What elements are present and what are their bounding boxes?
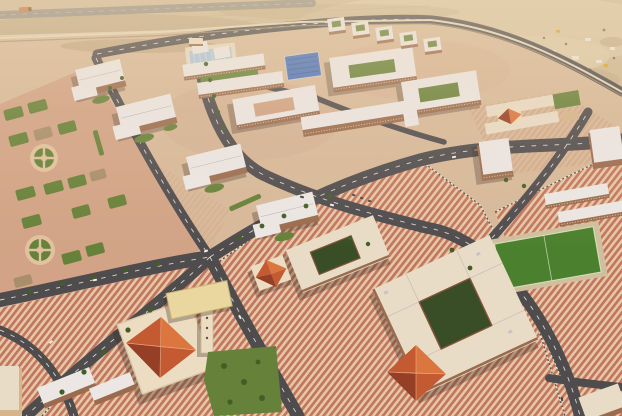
atmospheric-haze	[0, 0, 622, 416]
aerial-photo	[0, 0, 622, 416]
aerial-photo-figure	[0, 0, 622, 416]
